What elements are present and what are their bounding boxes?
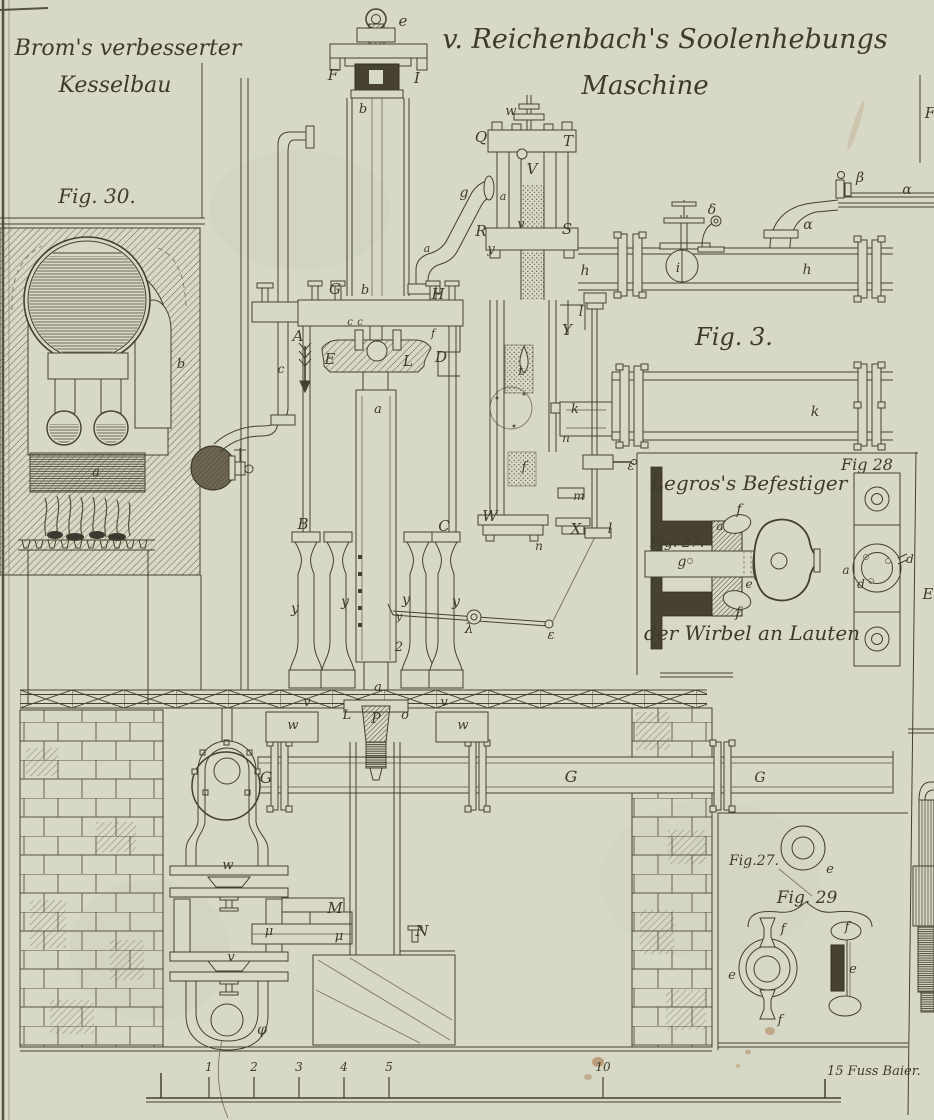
part-label-B: B: [296, 515, 308, 533]
part-label-w: w: [505, 104, 516, 119]
part-label-y: y: [486, 242, 495, 257]
baluster-column: [429, 532, 463, 688]
part-label-G: G: [329, 280, 341, 298]
caption-fig3: Fig. 3.: [694, 323, 773, 351]
scale-number-4: 4: [339, 1060, 348, 1074]
part-label-P: P: [370, 711, 381, 727]
part-label-A: A: [291, 327, 304, 345]
part-label-E: E: [922, 585, 934, 603]
part-label-v: v: [227, 950, 235, 965]
part-label-μ: μ: [265, 924, 273, 939]
part-label-b: b: [361, 283, 369, 298]
part-label-c: c: [278, 362, 285, 376]
part-label-a: a: [424, 242, 431, 255]
part-label-2: 2: [394, 640, 403, 655]
part-label-o: o: [401, 708, 409, 723]
part-label-a: a: [374, 402, 382, 417]
stain: [765, 1027, 775, 1035]
part-label-g: g: [460, 185, 469, 201]
part-label-λ: λ: [464, 621, 474, 637]
part-label-D: D: [434, 348, 447, 366]
part-label-α: α: [803, 217, 813, 233]
engraving-drawing: eFIbwQTVvRSygaGbHaccAELDfcabaBCyyyyy2λεY…: [0, 0, 934, 1120]
part-label-e: e: [826, 862, 834, 877]
part-label-X: X: [570, 520, 583, 538]
part-label-I: I: [413, 69, 421, 87]
ground-line: [20, 1047, 712, 1051]
stain: [584, 1074, 592, 1080]
part-label-S: S: [562, 220, 572, 238]
fig3-pipes: [578, 172, 934, 451]
stain: [736, 1064, 740, 1068]
part-label-a: a: [92, 465, 100, 480]
part-label-a: a: [374, 680, 382, 695]
part-label-G: G: [565, 767, 578, 786]
part-label-F: F: [327, 66, 339, 84]
part-label-l: l: [579, 304, 583, 320]
paper-crack: [218, 1040, 228, 1118]
part-label-G: G: [754, 770, 765, 786]
scale-bar: 123451015 Fuss Baier.: [146, 1060, 921, 1102]
part-label-k: k: [811, 404, 819, 420]
part-label-f: f: [777, 1013, 785, 1028]
part-label-y: y: [290, 601, 300, 617]
part-label-m: m: [573, 489, 584, 503]
left-pillar: [20, 710, 163, 1047]
part-label-V: V: [527, 160, 540, 178]
part-label-w: w: [457, 718, 468, 733]
part-label-e: e: [849, 962, 857, 977]
part-label-W: W: [482, 507, 499, 525]
fig28-plate: [853, 473, 907, 666]
part-label-b: b: [177, 357, 185, 372]
part-label-v: v: [440, 695, 448, 710]
part-label-y: y: [340, 594, 350, 610]
part-label-w: w: [222, 858, 233, 873]
part-label-ε: ε: [548, 628, 555, 643]
title-main-1: v. Reichenbach's Soolenhebungs: [442, 24, 887, 55]
caption-fig30: Fig. 30.: [57, 184, 136, 208]
fig30-boiler: [0, 63, 253, 705]
engraving-plate: eFIbwQTVvRSygaGbHaccAELDfcabaBCyyyyy2λεY…: [0, 0, 934, 1120]
baluster-column: [321, 532, 355, 688]
part-label-g: g: [678, 554, 687, 570]
caption-wirbel: der Wirbel an Lauten: [644, 621, 860, 645]
part-label-h: h: [802, 262, 811, 278]
part-label-L: L: [342, 708, 352, 723]
part-label-M: M: [326, 899, 343, 917]
part-label-C: C: [438, 517, 450, 535]
part-label-d: d: [857, 577, 865, 591]
title-left-2: Kesselbau: [58, 73, 172, 98]
part-label-y: y: [401, 592, 411, 608]
part-label-e: e: [728, 968, 736, 983]
part-label-d: d: [906, 552, 914, 566]
part-label-β: β: [855, 170, 864, 186]
part-label-N: N: [414, 922, 429, 940]
part-label-e: e: [745, 577, 752, 591]
scale-number-5: 5: [385, 1060, 393, 1074]
part-label-φ: φ: [257, 1022, 267, 1038]
part-label-e: e: [399, 12, 408, 30]
part-label-t: t: [518, 364, 524, 379]
caption-fig29: Fig. 29: [776, 888, 838, 908]
part-label-α: α: [902, 182, 912, 198]
part-label-c: c: [357, 317, 363, 328]
part-label-a: a: [842, 563, 849, 577]
part-label-Y: Y: [562, 321, 574, 339]
part-label-k: k: [571, 402, 579, 417]
scale-unit-label: 15 Fuss Baier.: [827, 1064, 921, 1079]
part-label-i: i: [676, 261, 680, 276]
part-label-f: f: [430, 327, 437, 340]
caption-fig27-side: Fig. 27.: [649, 535, 704, 551]
part-label-a: a: [500, 190, 507, 203]
part-label-a: a: [716, 519, 723, 533]
part-label-G: G: [260, 768, 273, 787]
part-label-H: H: [430, 285, 445, 303]
foundation-block: [313, 951, 455, 1045]
part-label-b: b: [359, 102, 367, 117]
stain: [745, 1050, 751, 1055]
part-label-n: n: [535, 539, 543, 553]
part-label-R: R: [474, 222, 486, 240]
part-label-y: y: [451, 594, 461, 610]
scale-number-2: 2: [249, 1060, 258, 1074]
part-label-y: y: [395, 610, 403, 623]
part-label-E: E: [324, 350, 336, 368]
scale-number-1: 1: [205, 1060, 213, 1074]
stain: [845, 99, 867, 150]
part-label-c: c: [347, 317, 353, 328]
pump-barrel-tube: [266, 700, 488, 955]
scale-number-3: 3: [295, 1060, 303, 1074]
part-label-L: L: [402, 352, 413, 370]
part-label-n: n: [562, 431, 570, 445]
part-label-ε: ε: [628, 459, 635, 474]
scale-number-10: 10: [595, 1060, 611, 1074]
part-label-T: T: [563, 132, 574, 150]
title-main-2: Maschine: [580, 71, 708, 101]
part-label-h: h: [580, 263, 589, 279]
caption-fig27-bottom: Fig.27.: [728, 853, 779, 869]
part-label-l: l: [608, 521, 612, 537]
part-label-δ: δ: [708, 202, 716, 218]
flow-arrow: [299, 343, 311, 392]
caption-fig28: Fig 28: [840, 455, 893, 474]
part-label-Q: Q: [475, 128, 487, 146]
right-edge-fragment: [913, 782, 934, 1012]
caption-legros: Legros's Befestiger: [650, 471, 849, 495]
baluster-column: [401, 532, 435, 688]
part-label-v: v: [517, 217, 525, 232]
title-left-1: Brom's verbesserter: [14, 36, 243, 61]
part-label-μ: μ: [335, 929, 343, 944]
part-label-F: F: [924, 104, 934, 122]
part-label-w: w: [287, 718, 298, 733]
part-label-v: v: [303, 695, 311, 710]
